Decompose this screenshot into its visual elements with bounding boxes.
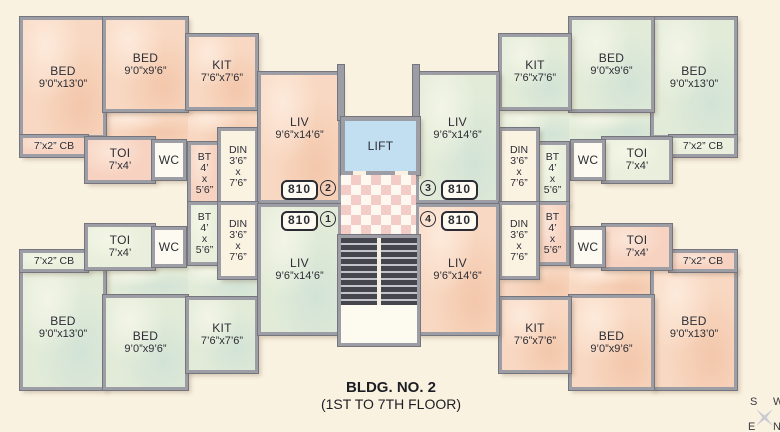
unit3-cupboard: 7’x2” CB bbox=[669, 135, 737, 157]
compass-icon bbox=[756, 409, 773, 426]
unit2-bedroom-small: BED9’0”x9’6” bbox=[103, 17, 188, 112]
compass-s: S bbox=[750, 396, 757, 408]
unit3-kitchen: KIT7’6”x7’6” bbox=[499, 34, 571, 110]
unit4-wc: WC bbox=[571, 227, 605, 267]
unit1-bedroom-large: BED9’0”x13’0” bbox=[20, 266, 106, 390]
staircase bbox=[338, 235, 420, 346]
unit3-bedroom-large: BED9’0”x13’0” bbox=[651, 17, 737, 138]
compass-n: N bbox=[773, 421, 780, 432]
unit-number-circle: 4 bbox=[420, 211, 436, 227]
unit4-kitchen: KIT7’6”x7’6” bbox=[499, 297, 571, 373]
unit2-cupboard: 7’x2” CB bbox=[20, 135, 88, 157]
flat-number-badge: 810 bbox=[441, 211, 478, 231]
unit1-toilet: TOI7’x4’ bbox=[85, 224, 155, 270]
unit3-dining: DIN3’6”x7’6” bbox=[499, 128, 539, 205]
unit4-passage bbox=[569, 267, 654, 295]
unit4-bath: BT4’x5’6” bbox=[536, 202, 569, 265]
compass-w: W bbox=[773, 396, 780, 408]
unit2-toilet: TOI7’x4’ bbox=[85, 137, 155, 183]
unit2-dining: DIN3’6”x7’6” bbox=[218, 128, 258, 205]
unit2-kitchen: KIT7’6”x7’6” bbox=[186, 34, 258, 110]
unit-number-circle: 2 bbox=[320, 180, 336, 196]
unit1-passage bbox=[103, 267, 188, 295]
unit1-bedroom-small: BED9’0”x9’6” bbox=[103, 295, 188, 390]
flat-number-badge: 810 bbox=[281, 211, 318, 231]
unit1-cupboard: 7’x2” CB bbox=[20, 250, 88, 272]
plan-title: BLDG. NO. 2 (1ST TO 7TH FLOOR) bbox=[296, 379, 486, 412]
lift-shaft-wall-left bbox=[338, 65, 344, 120]
flat-number-badge: 810 bbox=[281, 180, 318, 200]
flat-number-badge: 810 bbox=[441, 180, 478, 200]
unit2-bath: BT4’x5’6” bbox=[188, 142, 221, 205]
unit4-cupboard: 7’x2” CB bbox=[669, 250, 737, 272]
unit2-wc: WC bbox=[152, 140, 186, 180]
stair-flight-right bbox=[381, 238, 417, 305]
unit4-toilet: TOI7’x4’ bbox=[602, 224, 672, 270]
unit-number-circle: 1 bbox=[320, 211, 336, 227]
unit1-dining: DIN3’6”x7’6” bbox=[218, 202, 258, 279]
stair-flight-left bbox=[341, 238, 377, 305]
lift-shaft-wall-right bbox=[413, 65, 419, 120]
unit3-toilet: TOI7’x4’ bbox=[602, 137, 672, 183]
unit1-bath: BT4’x5’6” bbox=[188, 202, 221, 265]
unit3-wc: WC bbox=[571, 140, 605, 180]
unit3-passage bbox=[569, 112, 654, 140]
unit4-dining: DIN3’6”x7’6” bbox=[499, 202, 539, 279]
unit4-bedroom-large: BED9’0”x13’0” bbox=[651, 266, 737, 390]
unit4-bedroom-small: BED9’0”x9’6” bbox=[569, 295, 654, 390]
unit3-bath: BT4’x5’6” bbox=[536, 142, 569, 205]
unit1-wc: WC bbox=[152, 227, 186, 267]
compass-e: E bbox=[748, 421, 755, 432]
floor-plan: BED9’0”x13’0” BED9’0”x9’6” KIT7’6”x7’6” … bbox=[0, 0, 780, 432]
unit2-bedroom-large: BED9’0”x13’0” bbox=[20, 17, 106, 138]
unit2-passage bbox=[103, 112, 188, 140]
unit1-kitchen: KIT7’6”x7’6” bbox=[186, 297, 258, 373]
unit-number-circle: 3 bbox=[420, 180, 436, 196]
lift: LIFT bbox=[341, 117, 420, 175]
entrance-lobby bbox=[341, 175, 416, 235]
unit3-bedroom-small: BED9’0”x9’6” bbox=[569, 17, 654, 112]
